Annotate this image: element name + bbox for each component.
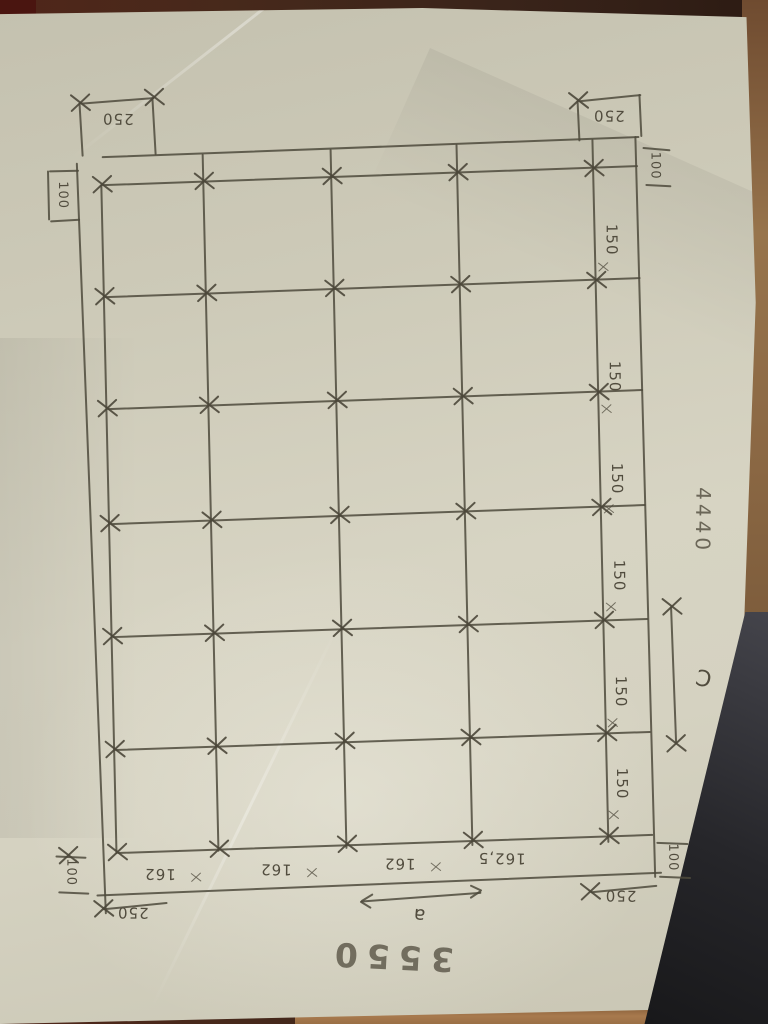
intersection-x-mark — [89, 894, 118, 923]
dim-label-bottom-right-250: 250 — [605, 886, 637, 904]
dim-arrow-tick — [599, 402, 613, 416]
dim-label-top-left-250: 250 — [102, 110, 134, 128]
sketch-line — [107, 389, 643, 410]
pencil-grid-sketch: 250 100 250 100 100 250 100 250 150 150 … — [0, 0, 768, 1024]
intersection-x-mark — [195, 390, 224, 419]
dim-label-col-spacing: 162 — [144, 865, 176, 883]
intersection-x-mark — [318, 162, 347, 191]
intersection-x-mark — [198, 505, 227, 534]
intersection-x-mark — [140, 83, 169, 112]
sketch-line — [659, 876, 691, 879]
side-total-label: 4440 — [691, 487, 716, 554]
intersection-x-mark — [564, 86, 593, 115]
intersection-x-mark — [576, 877, 605, 906]
sketch-lines-layer — [0, 0, 756, 9]
intersection-x-mark — [88, 170, 117, 199]
dim-arrow-tick — [607, 808, 621, 822]
dim-label-bottom-left-250: 250 — [117, 904, 149, 922]
sketch-line — [58, 891, 89, 894]
intersection-x-mark — [93, 394, 122, 423]
sketch-line — [105, 277, 641, 298]
intersection-x-mark — [454, 610, 483, 639]
dim-label-col-spacing: 162 — [260, 860, 292, 878]
dim-label-row-spacing: 150 — [608, 463, 626, 495]
sketch-line — [361, 892, 482, 903]
dim-label-top-left-100: 100 — [55, 181, 70, 209]
sketch-line — [113, 618, 649, 638]
dim-label-row-spacing: 150 — [610, 560, 628, 592]
intersection-x-mark — [580, 154, 609, 183]
sketch-line — [110, 504, 646, 525]
dim-label-row-spacing: 150 — [613, 768, 631, 800]
intersection-x-mark — [662, 729, 691, 758]
intersection-x-mark — [192, 278, 221, 307]
intersection-x-mark — [333, 830, 362, 859]
intersection-x-mark — [205, 834, 234, 863]
intersection-x-mark — [658, 592, 687, 621]
dim-arrow-tick — [604, 600, 618, 614]
dim-arrow-tick — [596, 260, 610, 274]
dim-arrow-tick — [189, 870, 203, 884]
sketch-line — [102, 165, 638, 186]
bay-letter-label: C — [693, 663, 715, 691]
intersection-x-mark — [91, 282, 120, 311]
sketch-line — [102, 136, 640, 158]
span-letter-label: a — [412, 904, 427, 927]
intersection-x-mark — [320, 274, 349, 303]
intersection-x-mark — [326, 501, 355, 530]
intersection-x-mark — [101, 735, 130, 764]
intersection-x-mark — [200, 618, 229, 647]
intersection-x-mark — [98, 622, 127, 651]
dim-label-row-spacing: 150 — [612, 676, 630, 708]
dim-label-bottom-right-100: 100 — [665, 843, 680, 871]
sketch-line — [638, 94, 642, 137]
intersection-x-mark — [452, 497, 481, 526]
sketch-line — [634, 136, 656, 878]
intersection-x-mark — [66, 88, 95, 117]
span-total-label: 3550 — [325, 934, 455, 979]
dim-arrow-tick — [429, 860, 443, 874]
sketch-line — [645, 184, 671, 187]
sketch-line — [50, 219, 80, 223]
sketch-line — [670, 606, 677, 744]
intersection-x-mark — [446, 270, 475, 299]
sketch-line — [47, 170, 50, 220]
dim-label-bottom-left-100: 100 — [63, 858, 78, 886]
dim-label-col-spacing: 162,5 — [478, 849, 526, 868]
dim-arrow-tick — [602, 502, 616, 516]
dim-label-top-right-250: 250 — [593, 107, 625, 125]
dim-label-col-spacing: 162 — [384, 854, 416, 872]
sketch-line — [49, 170, 79, 173]
intersection-x-mark — [331, 727, 360, 756]
photo-of-sketch: 250 100 250 100 100 250 100 250 150 150 … — [0, 0, 768, 1024]
intersection-x-mark — [444, 158, 473, 187]
dim-label-row-spacing: 150 — [603, 224, 621, 256]
sketch-line — [115, 731, 651, 751]
intersection-x-mark — [328, 614, 357, 643]
intersection-x-mark — [457, 723, 486, 752]
intersection-x-mark — [449, 382, 478, 411]
sketch-line — [117, 834, 653, 854]
intersection-x-mark — [190, 166, 219, 195]
dim-arrow-tick — [606, 716, 620, 730]
intersection-x-mark — [323, 386, 352, 415]
intersection-x-mark — [203, 731, 232, 760]
dim-label-top-right-100: 100 — [647, 152, 662, 180]
intersection-x-mark — [103, 838, 132, 867]
dim-label-row-spacing: 150 — [606, 361, 624, 393]
intersection-x-mark — [595, 821, 624, 850]
intersection-x-mark — [96, 509, 125, 538]
dim-arrow-tick — [305, 865, 319, 879]
sketch-line — [642, 147, 670, 151]
